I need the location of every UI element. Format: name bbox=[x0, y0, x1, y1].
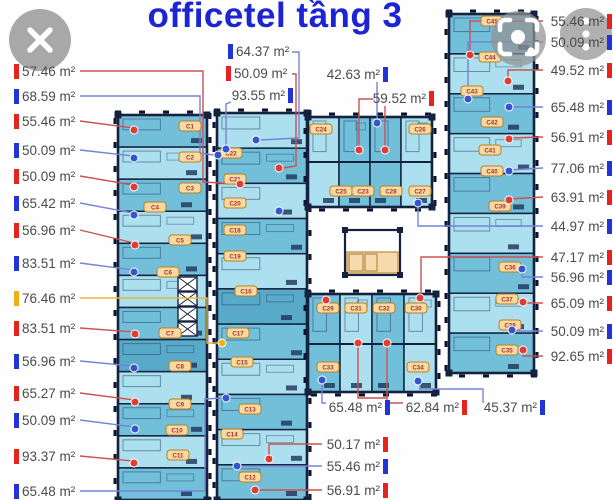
unit-dot bbox=[275, 207, 283, 215]
area-value: 65.27 m² bbox=[22, 386, 75, 401]
area-value: 50.09 m² bbox=[234, 66, 287, 81]
unit-chip: C35 bbox=[496, 345, 518, 355]
area-label: 65.27 m² bbox=[14, 386, 75, 401]
unit-block bbox=[214, 110, 311, 500]
svg-text:C7: C7 bbox=[166, 330, 174, 337]
elevator-shaft bbox=[178, 292, 197, 306]
core-block bbox=[342, 227, 403, 278]
unit-chip: C32 bbox=[373, 303, 395, 313]
area-value: 59.52 m² bbox=[373, 91, 426, 106]
area-color-bar bbox=[383, 67, 388, 82]
unit-chip: C6 bbox=[157, 267, 179, 277]
area-value: 56.91 m² bbox=[551, 130, 604, 145]
elevator-shaft bbox=[178, 277, 197, 291]
area-color-bar bbox=[14, 484, 19, 499]
unit-dot bbox=[236, 180, 244, 188]
svg-text:C20: C20 bbox=[229, 200, 241, 207]
area-color-bar bbox=[14, 196, 19, 211]
area-value: 65.42 m² bbox=[22, 196, 75, 211]
unit-dot bbox=[218, 339, 226, 347]
area-color-bar bbox=[14, 449, 19, 464]
area-value: 55.46 m² bbox=[22, 114, 75, 129]
unit-dot bbox=[130, 154, 138, 162]
unit-chip: C17 bbox=[227, 328, 249, 338]
area-label: 65.42 m² bbox=[14, 196, 75, 211]
svg-text:C27: C27 bbox=[414, 188, 426, 195]
svg-text:C42: C42 bbox=[486, 119, 498, 126]
close-icon bbox=[9, 9, 71, 71]
area-color-bar bbox=[226, 66, 231, 81]
unit-dot bbox=[214, 151, 222, 159]
unit-dot bbox=[131, 398, 139, 406]
area-label: 55.46 m² bbox=[324, 459, 388, 474]
svg-text:C39: C39 bbox=[494, 203, 506, 210]
area-color-bar bbox=[385, 400, 390, 415]
area-label: 50.09 m² bbox=[14, 143, 75, 158]
unit-chip: C1 bbox=[179, 121, 201, 131]
svg-text:C35: C35 bbox=[501, 347, 513, 354]
svg-text:C30: C30 bbox=[410, 305, 422, 312]
area-color-bar bbox=[607, 219, 612, 234]
area-color-bar bbox=[383, 459, 388, 474]
area-value: 92.65 m² bbox=[551, 349, 604, 364]
area-label: 50.09 m² bbox=[14, 169, 75, 184]
area-label: 44.97 m² bbox=[540, 219, 612, 234]
area-label: 76.46 m² bbox=[14, 291, 75, 306]
area-value: 42.63 m² bbox=[327, 67, 380, 82]
unit-dot bbox=[504, 77, 512, 85]
unit-chip: C43 bbox=[461, 86, 483, 96]
area-color-bar bbox=[228, 44, 233, 59]
unit-dot bbox=[355, 146, 363, 154]
area-color-bar bbox=[607, 35, 612, 50]
svg-text:C15: C15 bbox=[236, 359, 248, 366]
area-color-bar bbox=[14, 143, 19, 158]
floor-plan: C1C2C3C4C5C6C7C8C9C10C11C22C21C20C18C19C… bbox=[0, 0, 613, 500]
unit-dot bbox=[222, 145, 230, 153]
area-label: 47.17 m² bbox=[540, 250, 612, 265]
unit-chip: C31 bbox=[345, 303, 367, 313]
area-color-bar bbox=[14, 89, 19, 104]
unit-chip: C16 bbox=[235, 286, 257, 296]
unit-chip: C14 bbox=[221, 429, 243, 439]
area-label: 65.09 m² bbox=[540, 296, 612, 311]
unit-chip: C33 bbox=[317, 362, 339, 372]
area-label: 65.48 m² bbox=[14, 484, 75, 499]
svg-text:C31: C31 bbox=[350, 305, 362, 312]
area-value: 44.97 m² bbox=[551, 219, 604, 234]
unit-dot bbox=[251, 486, 259, 494]
area-label: 55.46 m² bbox=[540, 14, 612, 29]
area-label: 49.52 m² bbox=[540, 63, 612, 78]
svg-text:C6: C6 bbox=[164, 269, 172, 276]
unit-dot bbox=[265, 455, 273, 463]
unit-dot bbox=[519, 346, 527, 354]
unit-chip: C24 bbox=[310, 124, 332, 134]
unit-chip: C26 bbox=[409, 124, 431, 134]
unit-chip: C18 bbox=[224, 225, 246, 235]
unit-dot bbox=[318, 376, 326, 384]
unit-chip: C2 bbox=[179, 152, 201, 162]
area-value: 65.48 m² bbox=[551, 100, 604, 115]
area-value: 50.09 m² bbox=[551, 324, 604, 339]
unit-chip: C9 bbox=[169, 399, 191, 409]
unit-dot bbox=[322, 296, 330, 304]
area-label: 65.48 m² bbox=[540, 100, 612, 115]
area-label: 56.96 m² bbox=[540, 270, 612, 285]
area-label: 64.37 m² bbox=[228, 44, 289, 59]
area-value: 49.52 m² bbox=[551, 63, 604, 78]
area-value: 56.96 m² bbox=[22, 354, 75, 369]
unit-dot bbox=[233, 462, 241, 470]
unit-dot bbox=[252, 136, 260, 144]
area-label: 63.91 m² bbox=[540, 190, 612, 205]
area-value: 64.37 m² bbox=[236, 44, 289, 59]
svg-text:C10: C10 bbox=[171, 427, 183, 434]
unit-dot bbox=[505, 103, 513, 111]
area-color-bar bbox=[607, 161, 612, 176]
area-label: 56.96 m² bbox=[14, 223, 75, 238]
unit-dot bbox=[131, 241, 139, 249]
area-label: 56.96 m² bbox=[14, 354, 75, 369]
unit-chip: C13 bbox=[239, 404, 261, 414]
area-value: 56.96 m² bbox=[22, 223, 75, 238]
area-value: 50.17 m² bbox=[327, 437, 380, 452]
area-value: 50.09 m² bbox=[22, 413, 75, 428]
svg-text:C19: C19 bbox=[229, 253, 241, 260]
svg-text:C18: C18 bbox=[229, 227, 241, 234]
area-label: 83.51 m² bbox=[14, 321, 75, 336]
area-label: 42.63 m² bbox=[324, 67, 388, 82]
unit-dot bbox=[416, 294, 424, 302]
area-label: 77.06 m² bbox=[540, 161, 612, 176]
area-color-bar bbox=[14, 413, 19, 428]
unit-dot bbox=[505, 196, 513, 204]
unit-dot bbox=[130, 211, 138, 219]
area-label: 50.09 m² bbox=[14, 413, 75, 428]
unit-dot bbox=[414, 199, 422, 207]
unit-dot bbox=[373, 119, 381, 127]
area-color-bar bbox=[462, 400, 467, 415]
unit-chip: C20 bbox=[224, 198, 246, 208]
svg-text:C3: C3 bbox=[186, 185, 194, 192]
area-label: 92.65 m² bbox=[540, 349, 612, 364]
unit-chip: C36 bbox=[499, 262, 521, 272]
unit-dot bbox=[131, 425, 139, 433]
unit-chip: C37 bbox=[496, 294, 518, 304]
svg-text:C34: C34 bbox=[412, 364, 424, 371]
area-color-bar bbox=[14, 386, 19, 401]
svg-text:C23: C23 bbox=[357, 188, 369, 195]
area-label: 93.55 m² bbox=[229, 88, 293, 103]
unit-dot bbox=[505, 135, 513, 143]
svg-text:C36: C36 bbox=[504, 264, 516, 271]
unit-chip: C30 bbox=[405, 303, 427, 313]
unit-chip: C28 bbox=[380, 186, 402, 196]
unit-chip: C12 bbox=[239, 472, 261, 482]
svg-text:C41: C41 bbox=[484, 147, 496, 154]
area-label: 57.46 m² bbox=[14, 64, 75, 79]
area-label: 65.48 m² bbox=[322, 400, 390, 415]
area-value: 68.59 m² bbox=[22, 89, 75, 104]
area-value: 50.09 m² bbox=[22, 143, 75, 158]
svg-text:C8: C8 bbox=[176, 363, 184, 370]
area-value: 65.09 m² bbox=[551, 296, 604, 311]
area-color-bar bbox=[607, 100, 612, 115]
area-color-bar bbox=[607, 324, 612, 339]
unit-chip: C11 bbox=[167, 450, 189, 460]
area-value: 63.91 m² bbox=[551, 190, 604, 205]
svg-text:C24: C24 bbox=[315, 126, 327, 133]
unit-dot bbox=[519, 298, 527, 306]
unit-dot bbox=[466, 51, 474, 59]
unit-chip: C34 bbox=[407, 362, 429, 372]
area-color-bar bbox=[14, 114, 19, 129]
svg-text:C25: C25 bbox=[335, 188, 347, 195]
svg-text:C14: C14 bbox=[226, 431, 238, 438]
area-color-bar bbox=[383, 483, 388, 498]
area-color-bar bbox=[288, 88, 293, 103]
area-label: 50.09 m² bbox=[540, 324, 612, 339]
svg-text:C28: C28 bbox=[385, 188, 397, 195]
area-value: 47.17 m² bbox=[551, 250, 604, 265]
unit-dot bbox=[130, 183, 138, 191]
unit-dot bbox=[414, 377, 422, 385]
svg-text:C26: C26 bbox=[414, 126, 426, 133]
close-button[interactable] bbox=[9, 9, 71, 71]
svg-text:C17: C17 bbox=[232, 330, 244, 337]
area-label: 62.84 m² bbox=[401, 400, 467, 415]
unit-chip: C10 bbox=[166, 425, 188, 435]
svg-text:C32: C32 bbox=[378, 305, 390, 312]
area-label: 56.91 m² bbox=[540, 130, 612, 145]
svg-text:C1: C1 bbox=[186, 123, 194, 130]
page-title: officetel tầng 3 bbox=[70, 0, 480, 36]
area-value: 93.37 m² bbox=[22, 449, 75, 464]
lens-button[interactable] bbox=[491, 11, 546, 66]
unit-chip: C7 bbox=[159, 328, 181, 338]
area-value: 65.48 m² bbox=[22, 484, 75, 499]
area-color-bar bbox=[607, 190, 612, 205]
area-color-bar bbox=[383, 437, 388, 452]
area-label: 50.17 m² bbox=[324, 437, 388, 452]
area-color-bar bbox=[14, 291, 19, 306]
area-label: 55.46 m² bbox=[14, 114, 75, 129]
unit-dot bbox=[130, 126, 138, 134]
area-value: 83.51 m² bbox=[22, 256, 75, 271]
area-label: 59.52 m² bbox=[372, 91, 434, 106]
svg-text:C9: C9 bbox=[176, 401, 184, 408]
unit-dot bbox=[130, 459, 138, 467]
area-color-bar bbox=[607, 14, 612, 29]
area-color-bar bbox=[14, 321, 19, 336]
svg-text:C13: C13 bbox=[244, 406, 256, 413]
svg-text:C2: C2 bbox=[186, 154, 194, 161]
unit-chip: C8 bbox=[169, 361, 191, 371]
unit-chip: C5 bbox=[169, 235, 191, 245]
svg-text:C29: C29 bbox=[322, 305, 334, 312]
unit-dot bbox=[518, 265, 526, 273]
unit-chip: C42 bbox=[481, 117, 503, 127]
area-value: 45.37 m² bbox=[484, 400, 537, 415]
area-color-bar bbox=[14, 64, 19, 79]
area-color-bar bbox=[607, 270, 612, 285]
unit-dot bbox=[383, 339, 391, 347]
area-color-bar bbox=[540, 400, 545, 415]
unit-dot bbox=[130, 364, 138, 372]
svg-text:C5: C5 bbox=[176, 237, 184, 244]
unit-chip: C4 bbox=[144, 202, 166, 212]
area-color-bar bbox=[14, 223, 19, 238]
area-value: 55.46 m² bbox=[551, 14, 604, 29]
elevator-shaft bbox=[178, 307, 197, 321]
unit-chip: C27 bbox=[409, 186, 431, 196]
area-value: 57.46 m² bbox=[22, 64, 75, 79]
area-value: 50.09 m² bbox=[551, 35, 604, 50]
svg-text:C43: C43 bbox=[466, 88, 478, 95]
area-color-bar bbox=[607, 130, 612, 145]
unit-dot bbox=[130, 268, 138, 276]
svg-text:C16: C16 bbox=[240, 288, 252, 295]
area-value: 55.46 m² bbox=[327, 459, 380, 474]
area-color-bar bbox=[607, 250, 612, 265]
unit-chip: C19 bbox=[224, 251, 246, 261]
area-value: 62.84 m² bbox=[406, 400, 459, 415]
area-label: 93.37 m² bbox=[14, 449, 75, 464]
connector-line bbox=[509, 137, 543, 138]
unit-chip: C29 bbox=[317, 303, 339, 313]
svg-text:C40: C40 bbox=[486, 168, 498, 175]
area-value: 83.51 m² bbox=[22, 321, 75, 336]
area-value: 50.09 m² bbox=[22, 169, 75, 184]
svg-text:C11: C11 bbox=[172, 452, 184, 459]
area-value: 93.55 m² bbox=[232, 88, 285, 103]
unit-dot bbox=[354, 339, 362, 347]
area-value: 76.46 m² bbox=[22, 291, 75, 306]
unit-dot bbox=[508, 326, 516, 334]
area-value: 56.91 m² bbox=[327, 483, 380, 498]
unit-dot bbox=[131, 330, 139, 338]
unit-chip: C25 bbox=[330, 186, 352, 196]
area-color-bar bbox=[14, 354, 19, 369]
area-label: 68.59 m² bbox=[14, 89, 75, 104]
area-label: 83.51 m² bbox=[14, 256, 75, 271]
svg-text:C33: C33 bbox=[322, 364, 334, 371]
area-value: 56.96 m² bbox=[551, 270, 604, 285]
area-value: 77.06 m² bbox=[551, 161, 604, 176]
area-label: 45.37 m² bbox=[481, 400, 545, 415]
unit-chip: C41 bbox=[479, 145, 501, 155]
area-color-bar bbox=[607, 349, 612, 364]
area-label: 50.09 m² bbox=[540, 35, 612, 50]
svg-text:C4: C4 bbox=[151, 204, 159, 211]
unit-chip: C40 bbox=[481, 166, 503, 176]
area-color-bar bbox=[607, 63, 612, 78]
area-color-bar bbox=[429, 91, 434, 106]
unit-dot bbox=[381, 146, 389, 154]
unit-chip: C3 bbox=[179, 183, 201, 193]
svg-text:C37: C37 bbox=[501, 296, 513, 303]
area-color-bar bbox=[14, 169, 19, 184]
unit-chip: C15 bbox=[231, 357, 253, 367]
svg-text:C12: C12 bbox=[244, 474, 256, 481]
area-label: 56.91 m² bbox=[324, 483, 388, 498]
area-color-bar bbox=[14, 256, 19, 271]
google-lens-icon bbox=[491, 11, 546, 66]
floor-plan-viewer: C1C2C3C4C5C6C7C8C9C10C11C22C21C20C18C19C… bbox=[0, 0, 613, 500]
unit-dot bbox=[222, 394, 230, 402]
area-label: 50.09 m² bbox=[226, 66, 287, 81]
area-value: 65.48 m² bbox=[329, 400, 382, 415]
unit-chip: C23 bbox=[352, 186, 374, 196]
unit-dot bbox=[275, 164, 283, 172]
unit-dot bbox=[505, 167, 513, 175]
unit-dot bbox=[464, 95, 472, 103]
area-color-bar bbox=[607, 296, 612, 311]
